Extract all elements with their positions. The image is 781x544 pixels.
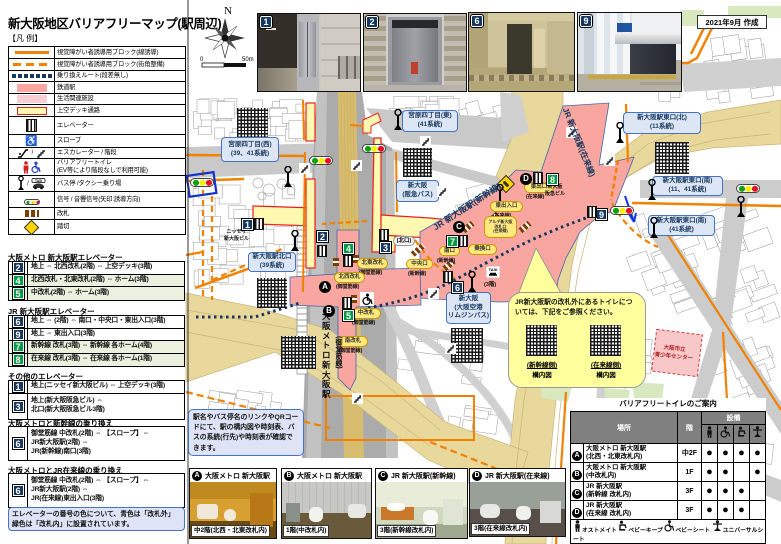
svg-text:50m: 50m: [242, 57, 254, 63]
svg-text:0: 0: [200, 57, 204, 63]
svg-text:TAXI: TAXI: [489, 267, 498, 272]
svg-text:TAXI: TAXI: [35, 178, 42, 182]
svg-text:N: N: [224, 5, 232, 17]
